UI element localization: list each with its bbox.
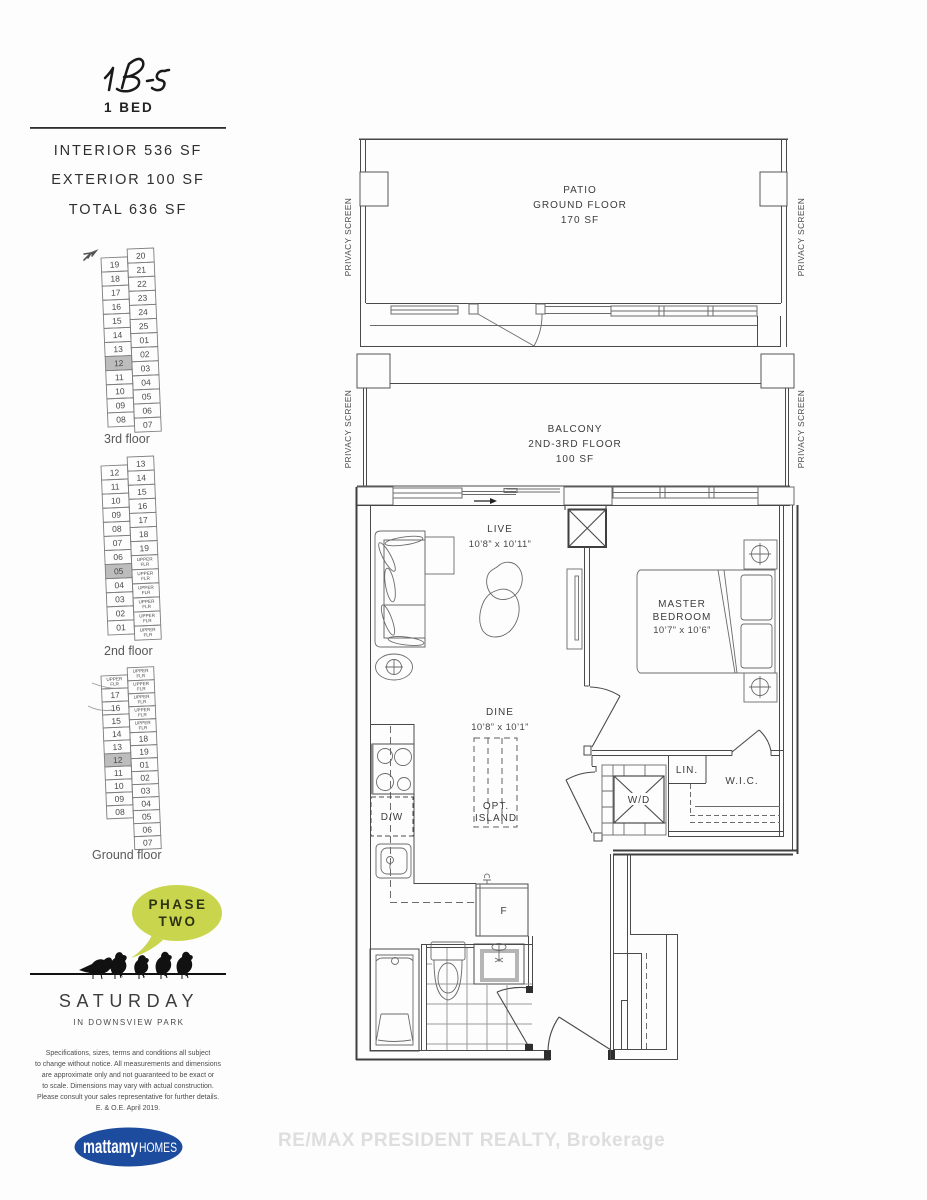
svg-text:10: 10 [111, 495, 121, 505]
svg-text:W.I.C.: W.I.C. [725, 776, 758, 787]
svg-text:2nd floor: 2nd floor [104, 644, 153, 658]
svg-text:03: 03 [141, 785, 151, 795]
svg-text:19: 19 [139, 543, 149, 553]
svg-text:08: 08 [112, 524, 122, 534]
svg-text:19: 19 [139, 746, 149, 756]
svg-text:14: 14 [113, 330, 123, 340]
svg-text:21: 21 [136, 265, 146, 275]
svg-text:HOMES: HOMES [139, 1140, 177, 1155]
svg-text:PRIVACY SCREEN: PRIVACY SCREEN [344, 390, 353, 469]
svg-text:FLR: FLR [110, 681, 120, 686]
svg-text:FLR: FLR [143, 632, 153, 637]
svg-text:3rd floor: 3rd floor [104, 432, 150, 446]
svg-text:17: 17 [111, 287, 121, 297]
svg-text:BALCONY: BALCONY [548, 424, 603, 435]
svg-text:F: F [500, 906, 507, 917]
svg-text:02: 02 [115, 608, 125, 618]
svg-text:12: 12 [114, 358, 124, 368]
svg-text:FLR: FLR [136, 673, 146, 678]
svg-text:22: 22 [137, 279, 147, 289]
svg-text:FLR: FLR [142, 604, 152, 609]
svg-text:05: 05 [142, 811, 152, 821]
svg-text:mattamy: mattamy [83, 1137, 138, 1158]
svg-text:05: 05 [114, 566, 124, 576]
svg-text:to scale. Dimensions may vary: to scale. Dimensions may vary with actua… [42, 1083, 214, 1090]
svg-text:FLR: FLR [137, 699, 147, 704]
svg-text:W/D: W/D [628, 795, 650, 806]
svg-text:TWO: TWO [159, 914, 198, 929]
svg-text:BEDROOM: BEDROOM [653, 612, 712, 623]
svg-text:11: 11 [111, 481, 121, 491]
svg-text:09: 09 [111, 510, 121, 520]
svg-text:FLR: FLR [138, 712, 148, 717]
svg-text:INTERIOR 536 SF: INTERIOR 536 SF [54, 143, 203, 159]
svg-text:PHASE: PHASE [148, 897, 207, 912]
svg-text:17: 17 [138, 515, 148, 525]
svg-text:100 SF: 100 SF [556, 454, 594, 465]
svg-text:17: 17 [110, 690, 120, 700]
svg-text:are approximate only and not g: are approximate only and not guaranteed … [42, 1072, 215, 1079]
svg-text:TOTAL 636 SF: TOTAL 636 SF [69, 202, 187, 218]
svg-text:08: 08 [115, 807, 125, 817]
svg-text:PRIVACY SCREEN: PRIVACY SCREEN [344, 198, 353, 277]
svg-text:ISLAND: ISLAND [475, 813, 517, 824]
svg-text:FLR: FLR [137, 686, 147, 691]
svg-text:07: 07 [143, 419, 153, 429]
svg-text:13: 13 [136, 458, 146, 468]
svg-text:LIN.: LIN. [676, 765, 698, 776]
svg-text:15: 15 [112, 316, 122, 326]
svg-text:18: 18 [110, 273, 120, 283]
svg-text:170 SF: 170 SF [561, 215, 599, 226]
svg-text:PRIVACY SCREEN: PRIVACY SCREEN [797, 198, 806, 277]
svg-text:11: 11 [115, 372, 125, 382]
svg-text:EXTERIOR 100 SF: EXTERIOR 100 SF [51, 172, 204, 188]
svg-text:DINE: DINE [486, 707, 514, 718]
svg-text:LIVE: LIVE [487, 524, 513, 535]
svg-text:25: 25 [139, 321, 149, 331]
svg-text:FLR: FLR [142, 590, 152, 595]
svg-text:15: 15 [137, 487, 147, 497]
svg-text:04: 04 [141, 377, 151, 387]
svg-text:RE/MAX PRESIDENT REALTY, Broke: RE/MAX PRESIDENT REALTY, Brokerage [278, 1130, 665, 1151]
svg-text:04: 04 [141, 798, 151, 808]
svg-text:16: 16 [111, 703, 121, 713]
svg-text:12: 12 [110, 467, 120, 477]
svg-text:02: 02 [140, 772, 150, 782]
svg-text:E. & O.E. April 2019.: E. & O.E. April 2019. [96, 1105, 160, 1112]
svg-text:10’8” x 10’1”: 10’8” x 10’1” [471, 722, 528, 733]
svg-text:01: 01 [140, 759, 150, 769]
svg-text:09: 09 [116, 400, 126, 410]
svg-text:OPT.: OPT. [483, 801, 509, 812]
svg-text:23: 23 [138, 293, 148, 303]
svg-text:12: 12 [113, 755, 123, 765]
svg-text:to change without notice. All: to change without notice. All measuremen… [35, 1061, 221, 1068]
svg-text:05: 05 [142, 391, 152, 401]
svg-text:04: 04 [114, 580, 124, 590]
svg-text:09: 09 [114, 794, 124, 804]
svg-text:18: 18 [138, 733, 148, 743]
svg-text:07: 07 [113, 538, 123, 548]
svg-text:1 BED: 1 BED [104, 100, 154, 115]
svg-text:14: 14 [136, 473, 146, 483]
svg-text:01: 01 [116, 622, 126, 632]
svg-text:2ND-3RD FLOOR: 2ND-3RD FLOOR [528, 439, 622, 450]
svg-text:11: 11 [114, 768, 124, 778]
svg-text:20: 20 [136, 250, 146, 260]
svg-text:IN DOWNSVIEW PARK: IN DOWNSVIEW PARK [73, 1018, 184, 1027]
svg-text:D/W: D/W [381, 812, 403, 823]
svg-text:18: 18 [139, 529, 149, 539]
svg-text:10’8” x 10’11”: 10’8” x 10’11” [469, 539, 531, 550]
svg-text:14: 14 [112, 729, 122, 739]
svg-text:02: 02 [140, 349, 150, 359]
svg-text:13: 13 [112, 742, 122, 752]
svg-text:07: 07 [143, 837, 153, 847]
svg-text:16: 16 [111, 302, 121, 312]
svg-text:03: 03 [115, 594, 125, 604]
svg-text:01: 01 [139, 335, 149, 345]
svg-text:PATIO: PATIO [563, 185, 597, 196]
svg-text:10: 10 [114, 781, 124, 791]
svg-text:FLR: FLR [143, 618, 153, 623]
svg-text:SATURDAY: SATURDAY [59, 991, 199, 1011]
svg-text:Specifications, sizes, terms a: Specifications, sizes, terms and conditi… [46, 1050, 211, 1057]
svg-text:06: 06 [142, 824, 152, 834]
svg-text:FLR: FLR [140, 562, 150, 567]
svg-text:06: 06 [113, 552, 123, 562]
svg-text:10’7” x 10’6”: 10’7” x 10’6” [653, 625, 710, 636]
svg-text:Ground floor: Ground floor [92, 848, 161, 862]
svg-text:FLR: FLR [139, 725, 149, 730]
svg-text:24: 24 [138, 307, 148, 317]
svg-text:Please consult your sales repr: Please consult your sales representative… [37, 1094, 219, 1101]
svg-text:FLR: FLR [141, 576, 151, 581]
svg-text:13: 13 [113, 344, 123, 354]
svg-text:15: 15 [111, 716, 121, 726]
svg-text:16: 16 [138, 501, 148, 511]
svg-text:GROUND FLOOR: GROUND FLOOR [533, 200, 627, 211]
svg-text:19: 19 [110, 259, 120, 269]
svg-text:10: 10 [115, 386, 125, 396]
svg-text:06: 06 [142, 405, 152, 415]
svg-text:08: 08 [116, 414, 126, 424]
svg-text:PRIVACY SCREEN: PRIVACY SCREEN [797, 390, 806, 469]
svg-text:MASTER: MASTER [658, 599, 706, 610]
svg-text:03: 03 [140, 363, 150, 373]
